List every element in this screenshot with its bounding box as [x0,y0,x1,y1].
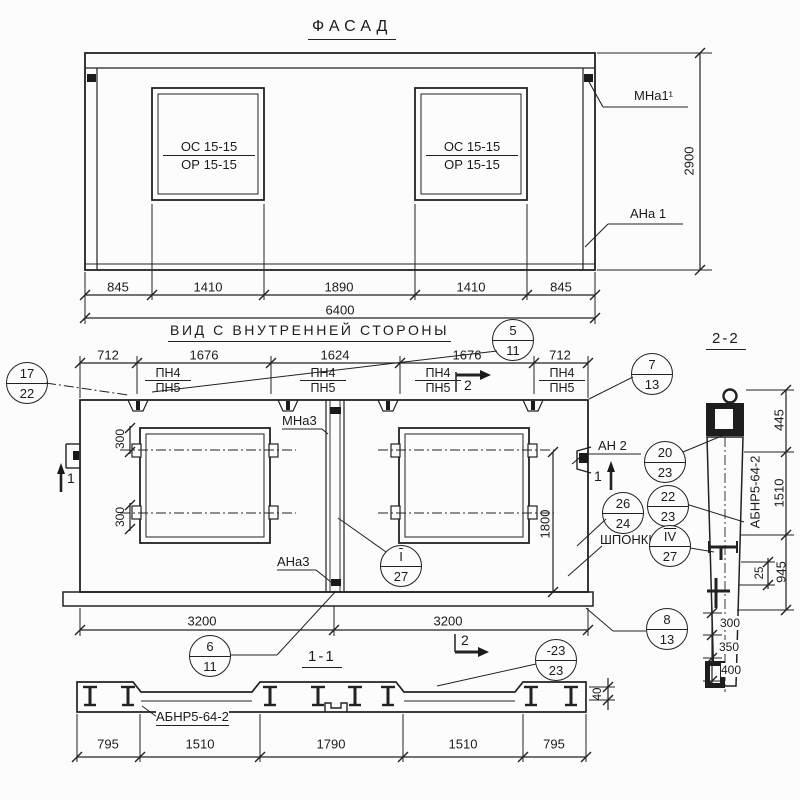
callout-bottom: 22 [7,383,47,403]
inner-window-left [140,428,270,543]
drawing-sheet: ФАСАД ВИД С ВНУТРЕННЕЙ СТОРОНЫ 2-2 1-1 О… [0,0,800,800]
callout-top: 6 [190,636,230,657]
dim-40: 40 [592,688,604,701]
dim-1510: 1510 [772,479,787,508]
dim-945: 945 [774,561,789,583]
dim-1676: 1676 [453,348,482,363]
dim-1510: 1510 [186,737,215,752]
window-mark-bottom: ОР 15-15 [163,156,255,172]
callout-7-13: 7 13 [631,353,673,395]
callout-bottom: 23 [648,506,688,526]
dim-1890: 1890 [325,280,354,295]
mark-pn4-pn5: ПН4 ПН5 [539,367,585,394]
callout-bottom: 27 [381,566,421,586]
callout-17-22: 17 22 [6,362,48,404]
callout-top: -23 [536,640,576,661]
dim-1800: 1800 [538,510,553,539]
dim-845: 845 [550,280,572,295]
callout-26-24: 26 24 [602,492,644,534]
dim-300: 300 [113,507,127,527]
callout-top: 22 [648,486,688,507]
dim-445: 445 [772,409,787,431]
mark-pn5: ПН5 [539,381,585,394]
mark-pn4: ПН4 [300,367,346,381]
window-mark-left: ОС 15-15 ОР 15-15 [163,139,255,172]
cut-label-2: 2 [461,632,469,648]
section-2-2-title: 2-2 [706,330,746,350]
facade-view [80,48,712,324]
callout-8-13: 8 13 [646,608,688,650]
dim-25: 25 [754,567,766,580]
plate-mark-abnr: АБНР5-64-2 [748,456,763,529]
dim-795: 795 [543,737,565,752]
facade-title: ФАСАД [308,18,396,40]
dim-1790: 1790 [317,737,346,752]
mark-pn4: ПН4 [145,367,191,381]
mark-pn4-pn5: ПН4 ПН5 [300,367,346,394]
callout-bottom: 13 [647,629,687,649]
anchor-mark-an2: АН 2 [598,438,627,453]
callout-top: IV [650,526,690,547]
callout-bottom: 24 [603,513,643,533]
dim-1410: 1410 [457,280,486,295]
section-2-2 [703,385,794,692]
dim-845: 845 [107,280,129,295]
mark-pn5: ПН5 [300,381,346,394]
callout-top: 20 [645,442,685,463]
cut-label-1: 1 [594,468,602,484]
mark-pn5: ПН5 [145,381,191,394]
drawing-linework [0,0,800,800]
mark-pn4: ПН4 [539,367,585,381]
callout-22-23: 22 23 [647,485,689,527]
callout-23-23: -23 23 [535,639,577,681]
weld-mark [87,74,96,82]
callout-top: 5 [493,320,533,341]
dim-400: 400 [721,663,741,677]
callout-6-11: 6 11 [189,635,231,677]
section-1-1-title: 1-1 [302,648,342,668]
mark-pn4: ПН4 [415,367,461,381]
dim-712: 712 [97,348,119,363]
anchor-mark-ana3: АНа3 [277,554,310,569]
dim-6400: 6400 [326,303,355,318]
plate-mark-abnr: АБНР5-64-2 [156,709,229,726]
inner-view-title: ВИД С ВНУТРЕННЕЙ СТОРОНЫ [168,322,451,342]
window-mark-right: ОС 15-15 ОР 15-15 [426,139,518,172]
dim-1510: 1510 [449,737,478,752]
dim-1624: 1624 [321,348,350,363]
callout-bottom: 23 [645,462,685,482]
anchor-mark-mna3: МНа3 [282,413,317,428]
window-mark-top: ОС 15-15 [426,139,518,156]
cut-label-1: 1 [67,470,75,486]
dim-300: 300 [113,429,127,449]
dim-3200: 3200 [188,614,217,629]
callout-top: 26 [603,493,643,514]
callout-bottom: 23 [536,660,576,680]
cut-label-2: 2 [464,377,472,393]
callout-top: I [381,546,421,567]
callout-top: 7 [632,354,672,375]
dim-3200: 3200 [434,614,463,629]
dim-795: 795 [97,737,119,752]
dim-350: 350 [719,640,739,654]
callout-bottom: 13 [632,374,672,394]
window-mark-bottom: ОР 15-15 [426,156,518,172]
callout-IV-27: IV 27 [649,525,691,567]
anchor-mark-mna1: МНа1¹ [634,88,673,103]
mark-pn5: ПН5 [415,381,461,394]
dim-1676: 1676 [190,348,219,363]
callout-20-23: 20 23 [644,441,686,483]
callout-bottom: 11 [190,656,230,676]
mark-pn4-pn5: ПН4 ПН5 [415,367,461,394]
mark-pn4-pn5: ПН4 ПН5 [145,367,191,394]
dim-712: 712 [549,348,571,363]
callout-I-27: I 27 [380,545,422,587]
window-mark-top: ОС 15-15 [163,139,255,156]
anchor-mark-ana1: АНа 1 [630,206,666,221]
dim-300: 300 [720,616,740,630]
callout-bottom: 27 [650,546,690,566]
inner-window-right [399,428,529,543]
callout-top: 8 [647,609,687,630]
callout-5-11: 5 11 [492,319,534,361]
callout-bottom: 11 [493,340,533,360]
callout-top: 17 [7,363,47,384]
dim-1410: 1410 [194,280,223,295]
dim-2900: 2900 [682,147,697,176]
